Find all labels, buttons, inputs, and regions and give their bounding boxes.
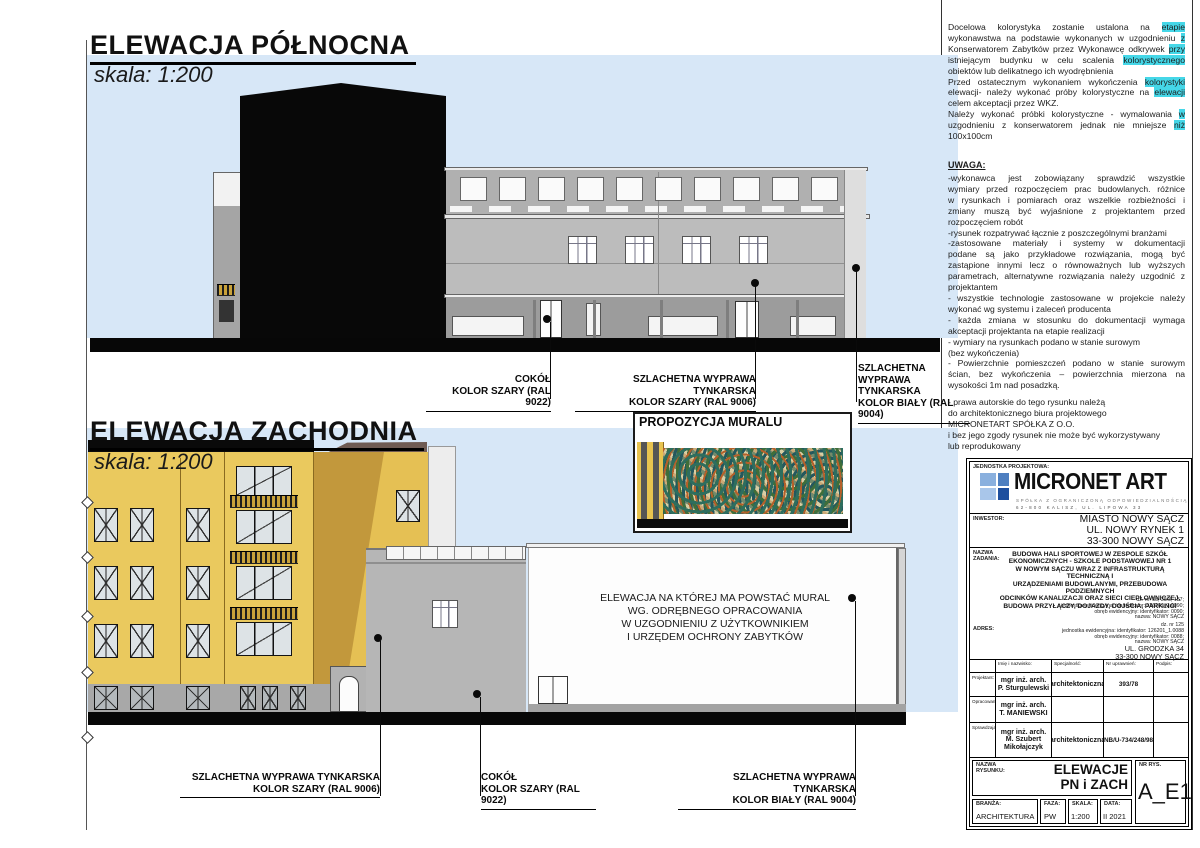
copyright-note: - prawa autorskie do tego rysunku należą… <box>948 397 1185 452</box>
adres-value: UL. GRODZKA 34 33-300 NOWY SĄCZ <box>1115 645 1184 661</box>
adres-label: ADRES: <box>973 626 994 632</box>
mural-photo-ground <box>637 519 848 528</box>
note-text: - każda zmiana w stosunku do dokumentacj… <box>948 315 1185 325</box>
note-text: - prawa autorskie do tego rysunku należą <box>948 397 1105 407</box>
tenement-window <box>186 624 210 658</box>
balcony-window-trio <box>236 510 292 544</box>
hall-window <box>739 236 768 264</box>
header-spec: Specjalność: <box>1052 660 1104 673</box>
tenement-window <box>186 566 210 600</box>
inwestor-label: INWESTOR: <box>973 516 1004 522</box>
note-text: uzgodnieniu z konserwatorem jednak nie m… <box>948 120 1174 130</box>
note-text: - Powierzchnie pomieszczeń podano w stan… <box>948 358 1185 368</box>
highlighted-text: przy <box>1169 44 1185 54</box>
logo-subline-2: 62-800 KALISZ, UL. LIPOWA 33 <box>1016 505 1142 510</box>
highlighted-text: kolorystycznego <box>1123 55 1185 65</box>
logo-square-2 <box>998 473 1009 486</box>
tb-row-jednostka: JEDNOSTKA PROJEKTOWA: MICRONET ART SPÓŁK… <box>970 462 1188 514</box>
west-facade-seam-1 <box>180 458 181 712</box>
west-hall-right-jamb <box>898 548 906 712</box>
inwestor-value: MIASTO NOWY SĄCZ UL. NOWY RYNEK 1 33-300… <box>1080 515 1184 547</box>
hall-window <box>682 236 711 264</box>
row-sprawdzajacy-name: mgr inż. arch. M. Szubert Mikołajczyk <box>996 723 1052 758</box>
storefront-window <box>452 316 524 336</box>
tenement-window <box>186 508 210 542</box>
note-text: rozpoczęciem robót <box>948 217 1023 227</box>
basement-window <box>290 686 306 710</box>
tenement-window <box>130 508 154 542</box>
north-side-building-balcony <box>217 284 235 296</box>
note-text: ścian, bez wykończenia – powierzchnia mi… <box>948 369 1185 379</box>
break-mark <box>81 731 94 744</box>
note-text: parametrach, alternatywne rozwiązania na… <box>948 271 1185 281</box>
highlighted-text: kolorystyki <box>1145 77 1185 87</box>
basement-window <box>130 686 154 710</box>
north-ground <box>90 338 940 352</box>
west-hall-door <box>538 676 568 704</box>
arcade-pillar <box>533 300 536 338</box>
row-opracowanie-name: mgr inż. arch. T. MANIEWSKI <box>996 697 1052 723</box>
basement-window <box>240 686 256 710</box>
west-entrance-opening <box>339 676 359 712</box>
row-opracowanie-role: Opracowanie: <box>970 697 996 723</box>
note-text: zastąpione innymi lecz o równoważnych lu… <box>948 260 1185 270</box>
uwaga-title: UWAGA: <box>948 160 1185 170</box>
drawing-name-label: NAZWA RYSUNKU: <box>976 762 1005 774</box>
north-hall-right-pilaster <box>844 170 866 338</box>
mural-photo-building <box>637 442 664 524</box>
logo-wordmark: MICRONET ART <box>1014 468 1167 495</box>
data-box: DATA: II 2021 <box>1100 799 1132 824</box>
leader-line <box>380 641 381 796</box>
uwaga-body: -wykonawca jest zobowiązany sprawdzić ws… <box>948 173 1185 391</box>
data-label: DATA: <box>1104 801 1120 807</box>
west-gray-parapet-rail <box>386 546 526 560</box>
north-elevation-scale: skala: 1:200 <box>94 62 213 88</box>
gray-building-window <box>432 600 458 628</box>
logo-square-3 <box>980 488 996 500</box>
arcade-pillar <box>593 300 596 338</box>
note-text: w rysunkach i pomiarach oraz wszelkie ro… <box>948 195 1185 205</box>
note-text: (bez wykończenia) <box>948 348 1019 358</box>
tb-row-inwestor: INWESTOR: MIASTO NOWY SĄCZ UL. NOWY RYNE… <box>970 514 1188 548</box>
north-side-building-window <box>219 300 234 322</box>
data-value: II 2021 <box>1103 812 1126 821</box>
row-projektant-podpis <box>1154 673 1188 697</box>
logo-subline-1: SPÓŁKA Z OGRANICZONĄ ODPOWIEDZIALNOŚCIĄ <box>1016 498 1188 503</box>
note-text: -zastosowane materiały i systemy w dokum… <box>948 238 1185 248</box>
west-label-cokol: COKÓŁ KOLOR SZARY (RAL 9022) <box>481 772 596 810</box>
highlighted-text: niż <box>1174 120 1185 130</box>
drawing-sheet: ELEWACJA PÓŁNOCNA skala: 1:200 COKÓŁ KOL… <box>0 0 1200 848</box>
hall-window <box>625 236 654 264</box>
note-text: 100x100cm <box>948 131 992 141</box>
dzialka-1: dz. nr: 35, 39/3, 137; jednostka ewidenc… <box>1061 598 1184 621</box>
west-wall-note: ELEWACJA NA KTÓREJ MA POWSTAĆ MURAL WG. … <box>545 592 885 644</box>
basement-window <box>94 686 118 710</box>
mural-proposal-inset: PROPOZYCJA MURALU <box>633 412 852 533</box>
note-text: projektantem <box>948 282 998 292</box>
row-sprawdzajacy-podpis <box>1154 723 1188 758</box>
note-text: wykonać wg systemu i zaleceń producenta <box>948 304 1111 314</box>
highlighted-text: z <box>1181 33 1185 43</box>
west-label-tynk-szary: SZLACHETNA WYPRAWA TYNKARSKA KOLOR SZARY… <box>180 772 380 798</box>
branza-box: BRANŻA: ARCHITEKTURA <box>972 799 1038 824</box>
tenement-window <box>396 490 420 522</box>
clerestory-window <box>694 177 721 201</box>
note-text: -wykonawca jest zobowiązany sprawdzić ws… <box>948 173 1185 183</box>
logo-square-1 <box>980 473 996 486</box>
dzialka-2: dz. nr 125 jednostka ewidencyjna: identy… <box>1062 623 1184 646</box>
balcony-window-trio <box>236 466 292 496</box>
tenement-window <box>94 508 118 542</box>
hall-window <box>568 236 597 264</box>
personnel-table: Imię i nazwisko: Specjalność: Nr uprawni… <box>970 660 1188 758</box>
sheet-right-margin-line <box>1192 0 1193 830</box>
note-text: Należy wykonać próbki kolorystyczne - wy… <box>948 109 1179 119</box>
note-text: wymiary przed rozpoczęciem prac budowlan… <box>948 184 1185 194</box>
note-text: Przed ostatecznym wykonaniem wykończenia <box>948 77 1145 87</box>
note-text: MICRONETART SPÓŁKA Z O.O. <box>948 419 1075 429</box>
balcony-railing <box>230 607 298 620</box>
balcony-window-trio <box>236 622 292 656</box>
highlighted-text: elewacji <box>1154 87 1185 97</box>
note-text: celem akceptacji przez WKZ. <box>948 98 1059 108</box>
north-hall-clerestory-slits <box>450 206 860 212</box>
west-facade-seam-3 <box>313 452 314 712</box>
tb-row-bottom: NAZWA RYSUNKU: ELEWACJE PN i ZACH NR RYS… <box>970 758 1188 826</box>
tenement-window <box>94 566 118 600</box>
note-text: lub reprodukowany <box>948 441 1021 451</box>
west-chimney <box>428 446 456 550</box>
basement-window <box>262 686 278 710</box>
note-text: elewacji- należy wykonać próby kolorysty… <box>948 87 1154 97</box>
arcade-pillar <box>796 300 799 338</box>
title-block-inner-frame: JEDNOSTKA PROJEKTOWA: MICRONET ART SPÓŁK… <box>969 461 1189 827</box>
row-sprawdzajacy-role: Sprawdzający: <box>970 723 996 758</box>
drawing-name-box: NAZWA RYSUNKU: ELEWACJE PN i ZACH <box>972 760 1132 796</box>
balcony-railing <box>230 551 298 564</box>
west-gray-building <box>366 548 526 712</box>
note-text: do architektonicznego biura projektowego <box>948 408 1107 418</box>
highlighted-text: w <box>1179 109 1185 119</box>
row-projektant-name: mgr inż. arch. P. Sturgulewski <box>996 673 1052 697</box>
arcade-pillar <box>726 300 729 338</box>
row-opracowanie-spec <box>1052 697 1104 723</box>
row-projektant-nr: 393/78 <box>1104 673 1154 697</box>
color-scheme-note: Docelowa kolorystyka zostanie ustalona n… <box>948 22 1185 142</box>
faza-label: FAZA: <box>1044 801 1060 807</box>
clerestory-window <box>499 177 526 201</box>
clerestory-window <box>733 177 760 201</box>
arcade-pillar <box>660 300 663 338</box>
west-label-tynk-bialy: SZLACHETNA WYPRAWA TYNKARSKA KOLOR BIAŁY… <box>678 772 856 810</box>
note-text: -rysunek rozpatrywać łącznie z poszczegó… <box>948 228 1167 238</box>
micronet-logo-icon <box>980 473 1010 501</box>
north-label-tynk-szary: SZLACHETNA WYPRAWA TYNKARSKA KOLOR SZARY… <box>575 374 756 412</box>
mural-photo-artwork <box>663 448 843 514</box>
basement-window <box>186 686 210 710</box>
table-corner-cell <box>970 660 996 673</box>
branza-value: ARCHITEKTURA <box>976 812 1034 821</box>
row-opracowanie-podpis <box>1154 697 1188 723</box>
row-sprawdzajacy-nr: NB/U-734/248/98 <box>1104 723 1154 758</box>
west-ground <box>88 712 906 725</box>
west-facade-seam-2 <box>224 452 225 712</box>
clerestory-window <box>460 177 487 201</box>
note-text: wysokości 1m nad posadzką. <box>948 380 1060 390</box>
tenement-window <box>130 624 154 658</box>
faza-value: PW <box>1044 812 1056 821</box>
header-nr: Nr uprawnień: <box>1104 660 1154 673</box>
uwaga-note: UWAGA: -wykonawca jest zobowiązany spraw… <box>948 160 1185 391</box>
west-elevation-title: ELEWACJA ZACHODNIA <box>90 416 424 451</box>
north-elevation-title: ELEWACJA PÓŁNOCNA <box>90 30 416 65</box>
header-podpis: Podpis: <box>1154 660 1188 673</box>
leader-line <box>856 271 857 402</box>
drawing-number-value: A_E1 <box>1138 779 1192 805</box>
skala-value: 1:200 <box>1071 812 1090 821</box>
note-text: podane są jako przykładowe rozwiązania, … <box>948 249 1185 259</box>
row-projektant-spec: architektoniczna <box>1052 673 1104 697</box>
note-text: istniejącym budynku w celu scalenia <box>948 55 1123 65</box>
branza-label: BRANŻA: <box>976 801 1001 807</box>
highlighted-text: etapie <box>1162 22 1185 32</box>
note-text: zmiany muszą być wyjaśnione z projektant… <box>948 206 1185 216</box>
clerestory-window <box>616 177 643 201</box>
drawing-number-label: NR RYS. <box>1139 762 1161 768</box>
note-text: - wszystkie technologie zastosowane w pr… <box>948 293 1185 303</box>
clerestory-window <box>577 177 604 201</box>
north-tower-silhouette <box>240 83 446 338</box>
clerestory-window <box>655 177 682 201</box>
note-text: - wymiary na rysunkach podano w stanie s… <box>948 337 1140 347</box>
west-gray-cornice-line <box>366 562 526 564</box>
title-block: JEDNOSTKA PROJEKTOWA: MICRONET ART SPÓŁK… <box>966 458 1192 830</box>
storefront-window <box>648 316 718 336</box>
tb-row-nazwa: NAZWA ZADANIA: BUDOWA HALI SPORTOWEJ W Z… <box>970 548 1188 660</box>
faza-box: FAZA: PW <box>1040 799 1066 824</box>
note-text: Docelowa kolorystyka zostanie ustalona n… <box>948 22 1162 32</box>
north-label-cokol: COKÓŁ KOLOR SZARY (RAL 9022) <box>426 374 551 412</box>
note-text: i bez jego zgody rysunek nie może być wy… <box>948 430 1160 440</box>
header-name: Imię i nazwisko: <box>996 660 1052 673</box>
clerestory-window <box>811 177 838 201</box>
note-text: Konserwatorem Zabytków przez Wykonawcę o… <box>948 44 1169 54</box>
drawing-name-value: ELEWACJE PN i ZACH <box>1054 762 1128 792</box>
tenement-window <box>94 624 118 658</box>
row-opracowanie-nr <box>1104 697 1154 723</box>
skala-box: SKALA: 1:200 <box>1068 799 1098 824</box>
row-sprawdzajacy-spec: architektoniczna <box>1052 723 1104 758</box>
skala-label: SKALA: <box>1072 801 1093 807</box>
mural-proposal-title: PROPOZYCJA MURALU <box>639 415 782 429</box>
logo-square-4 <box>998 488 1009 500</box>
clerestory-window <box>772 177 799 201</box>
west-elevation-scale: skala: 1:200 <box>94 449 213 475</box>
note-text: akceptacji projektanta na etapie realiza… <box>948 326 1105 336</box>
clerestory-window <box>538 177 565 201</box>
note-text: obiektów lub delikatnego ich wyodrębnien… <box>948 66 1113 76</box>
row-projektant-role: Projektant: <box>970 673 996 697</box>
balcony-window-trio <box>236 566 292 600</box>
note-text: wykonawstwa na podstawie wykonanych w uz… <box>948 33 1181 43</box>
tb-row-table: Imię i nazwisko: Specjalność: Nr uprawni… <box>970 660 1188 758</box>
tenement-window <box>130 566 154 600</box>
balcony-railing <box>230 495 298 508</box>
drawing-number-box: NR RYS. A_E1 <box>1135 760 1186 824</box>
